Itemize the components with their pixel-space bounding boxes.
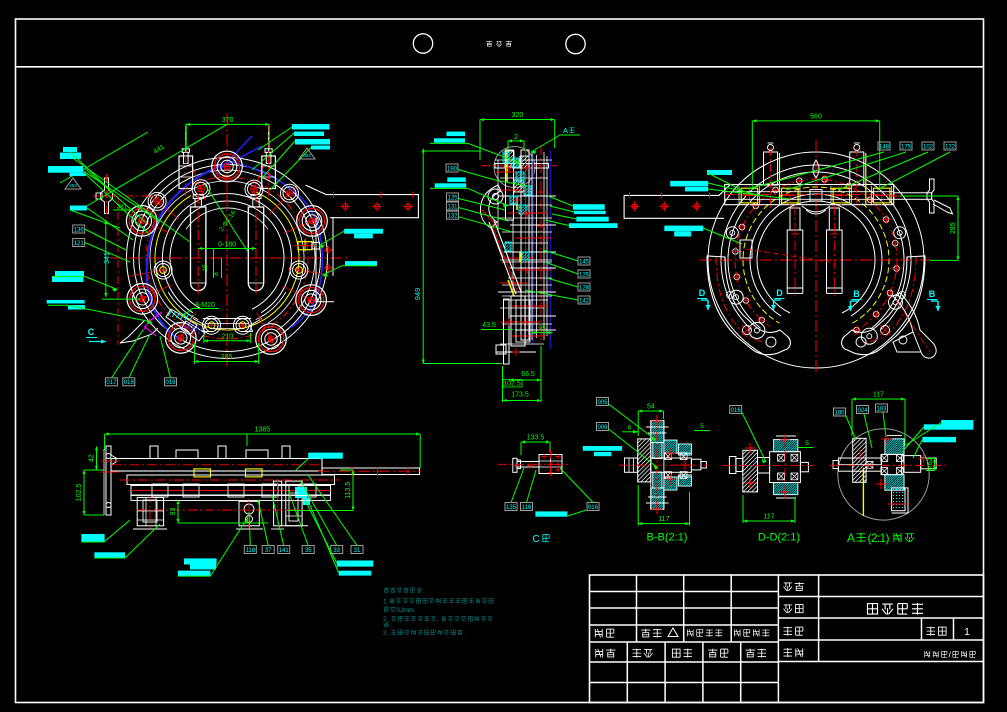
svg-text:142: 142: [579, 298, 590, 304]
svg-text:173.5: 173.5: [511, 392, 529, 399]
svg-text:019: 019: [165, 380, 176, 386]
svg-text:102.5: 102.5: [76, 484, 83, 502]
svg-text:175: 175: [901, 144, 912, 150]
svg-text:15: 15: [202, 264, 209, 272]
svg-text:8: 8: [213, 272, 220, 276]
svg-text:,: ,: [437, 616, 439, 623]
svg-text:C: C: [88, 327, 95, 337]
svg-text:2: 2: [514, 134, 518, 141]
svg-text:6: 6: [627, 425, 631, 432]
svg-text:141: 141: [279, 548, 290, 554]
svg-text:0.2mm.: 0.2mm.: [396, 607, 415, 614]
svg-text:1385: 1385: [255, 427, 271, 434]
svg-text:.: .: [390, 622, 392, 629]
svg-text:210: 210: [221, 333, 233, 340]
svg-text:35: 35: [305, 548, 312, 554]
svg-text:33: 33: [333, 548, 340, 554]
svg-text:D-D(2:1): D-D(2:1): [758, 532, 800, 544]
svg-text:125: 125: [579, 272, 590, 278]
svg-text:135: 135: [506, 505, 517, 511]
svg-text:320: 320: [512, 112, 524, 119]
svg-text:1: 1: [964, 627, 970, 638]
svg-text:949: 949: [413, 288, 422, 301]
svg-text:128: 128: [579, 285, 590, 291]
svg-text:453: 453: [69, 183, 77, 188]
svg-text:180: 180: [834, 410, 845, 416]
svg-text:006: 006: [597, 425, 608, 431]
svg-text:132: 132: [447, 214, 458, 220]
svg-text:(2:1): (2:1): [868, 531, 890, 545]
svg-text:95: 95: [538, 326, 546, 333]
svg-text:122: 122: [945, 144, 956, 150]
svg-text:Φ62: Φ62: [927, 458, 934, 471]
svg-text:116: 116: [522, 505, 532, 511]
svg-text:125: 125: [447, 195, 458, 201]
svg-text:016: 016: [731, 408, 742, 414]
svg-text:285: 285: [950, 222, 957, 234]
svg-text:117: 117: [763, 514, 774, 521]
svg-text:265: 265: [221, 354, 233, 361]
svg-text:B: B: [929, 289, 936, 299]
svg-text:560: 560: [810, 113, 822, 120]
svg-text:180: 180: [447, 166, 458, 172]
svg-text:A: A: [563, 126, 568, 135]
svg-text:103: 103: [876, 406, 887, 412]
svg-text:37: 37: [265, 548, 272, 554]
svg-text:C: C: [532, 534, 539, 545]
svg-text:024: 024: [857, 408, 868, 414]
svg-text:B-B(2:1): B-B(2:1): [647, 532, 688, 544]
svg-text:017: 017: [106, 380, 117, 386]
svg-text:0-180: 0-180: [218, 242, 236, 249]
svg-text:.: .: [463, 630, 465, 637]
svg-text:5: 5: [700, 423, 704, 430]
svg-text:453: 453: [303, 153, 311, 158]
svg-text:1.: 1.: [383, 598, 389, 605]
svg-text:8-M20: 8-M20: [195, 302, 215, 309]
svg-text:42: 42: [88, 454, 95, 462]
svg-text:121: 121: [74, 241, 85, 247]
svg-text:148: 148: [879, 144, 890, 150]
svg-text:D: D: [776, 288, 783, 298]
svg-text:43.5: 43.5: [482, 322, 496, 329]
svg-text:145: 145: [579, 259, 590, 265]
svg-text:31: 31: [354, 548, 361, 554]
svg-text:102.5: 102.5: [503, 381, 521, 388]
svg-text:102: 102: [923, 144, 934, 150]
svg-text:370: 370: [222, 117, 234, 124]
svg-text:381: 381: [117, 204, 128, 211]
svg-text:117: 117: [658, 516, 669, 523]
svg-text:113.5: 113.5: [345, 482, 352, 499]
svg-text:D: D: [699, 288, 706, 298]
svg-text:B: B: [853, 289, 860, 299]
svg-text:136: 136: [74, 227, 85, 233]
svg-text:54: 54: [647, 404, 655, 411]
svg-text:5: 5: [805, 440, 809, 447]
svg-text:016: 016: [588, 505, 599, 511]
svg-text:A: A: [847, 531, 855, 545]
svg-text:131: 131: [447, 204, 458, 210]
svg-text:118: 118: [246, 548, 256, 554]
svg-text:133.5: 133.5: [527, 435, 545, 442]
svg-text:117: 117: [873, 392, 884, 399]
svg-text:018: 018: [124, 380, 135, 386]
svg-text:005: 005: [597, 400, 608, 406]
svg-text:66.5: 66.5: [521, 371, 535, 378]
svg-text:93: 93: [170, 508, 177, 516]
